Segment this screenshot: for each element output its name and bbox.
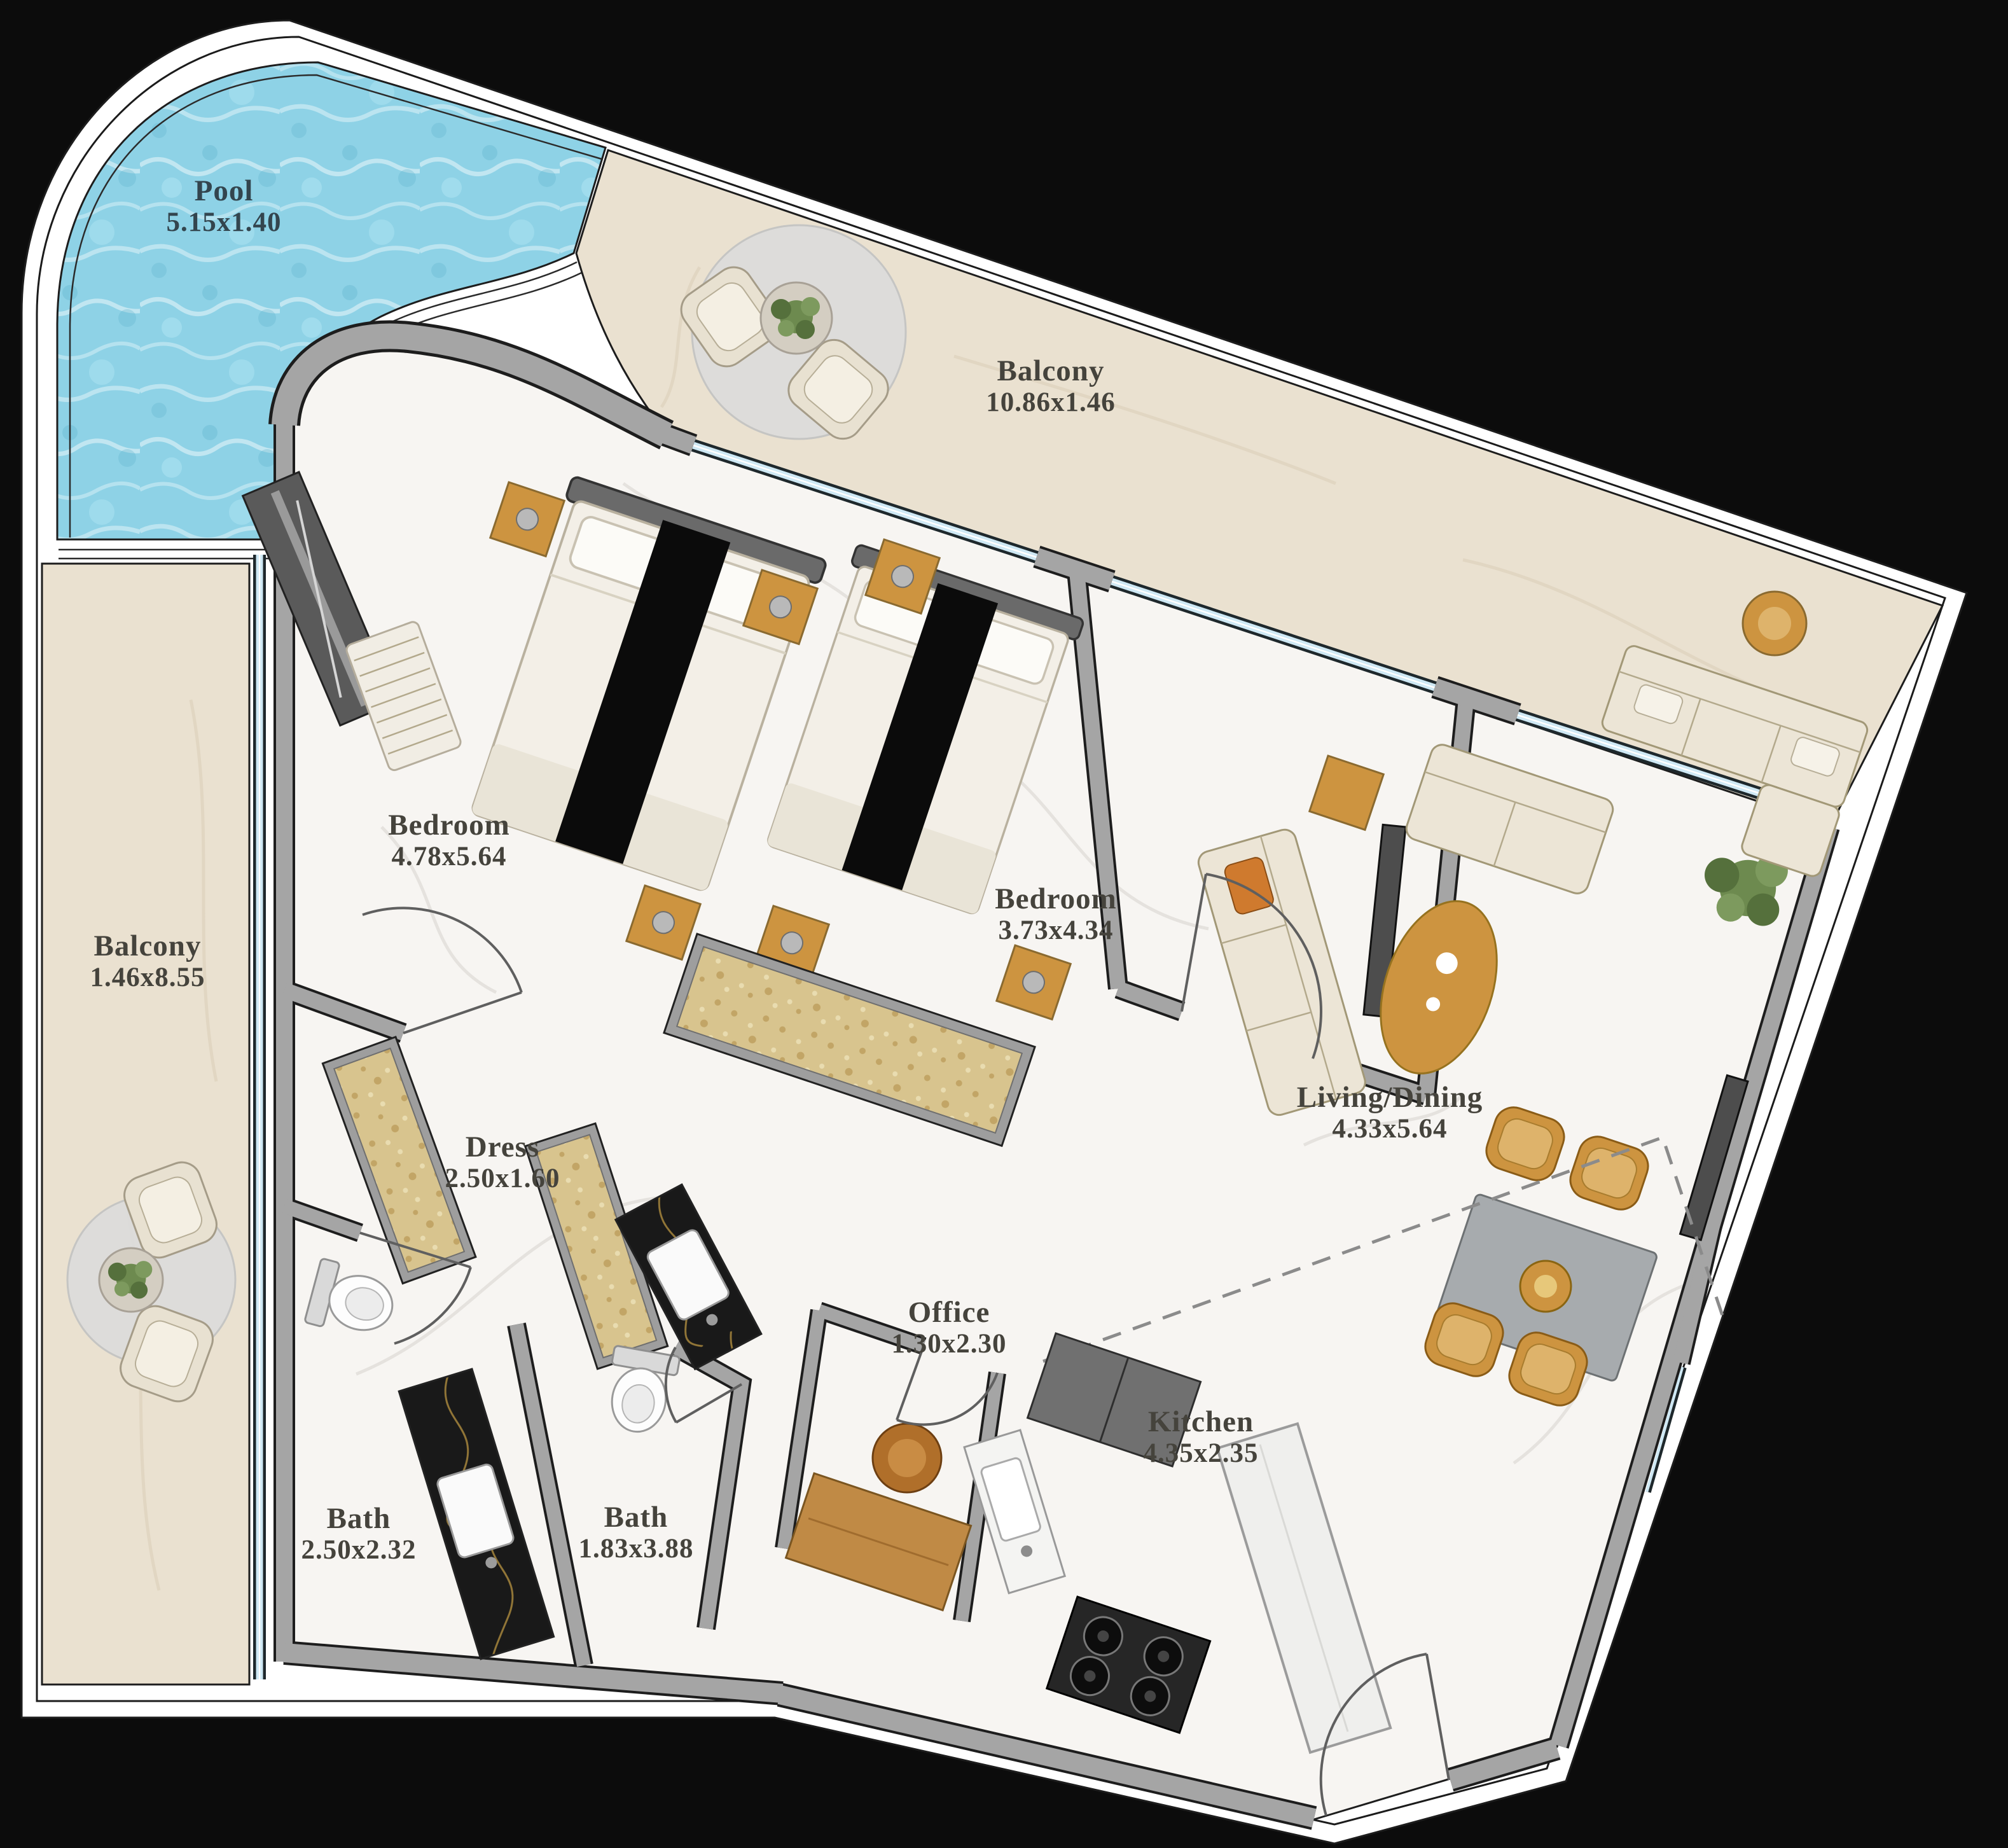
balcony-top-label: Balcony <box>997 354 1105 387</box>
balcony-left-dims: 1.46x8.55 <box>90 962 205 992</box>
living-dining-dims: 4.33x5.64 <box>1333 1114 1448 1144</box>
office-dims: 1.30x2.30 <box>892 1329 1007 1359</box>
dress-label: Dress <box>466 1130 539 1164</box>
bedroom-2-dims: 3.73x4.34 <box>999 915 1114 945</box>
pool-dims: 5.15x1.40 <box>167 207 282 237</box>
kitchen-dims: 4.35x2.35 <box>1144 1438 1259 1468</box>
dress-dims: 2.50x1.60 <box>445 1164 560 1193</box>
bedroom-1-dims: 4.78x5.64 <box>392 842 507 872</box>
balcony-left-label: Balcony <box>94 929 202 962</box>
floor-plan-svg: Pool 5.15x1.40 Balcony 10.86x1.46 Balcon… <box>0 0 2008 1848</box>
bath-2-dims: 1.83x3.88 <box>579 1534 694 1564</box>
balcony-top-dims: 10.86x1.46 <box>986 387 1116 417</box>
bath-1-dims: 2.50x2.32 <box>301 1535 417 1565</box>
office-label: Office <box>908 1296 990 1329</box>
bath-2-label: Bath <box>604 1501 668 1534</box>
pool-label: Pool <box>195 174 254 207</box>
bedroom-2-label: Bedroom <box>995 882 1117 915</box>
floor-plan-page: Pool 5.15x1.40 Balcony 10.86x1.46 Balcon… <box>0 0 2008 1848</box>
bedroom-1-label: Bedroom <box>388 809 510 842</box>
kitchen-label: Kitchen <box>1148 1405 1254 1438</box>
living-dining-label: Living/Dining <box>1297 1081 1483 1114</box>
bath-1-label: Bath <box>327 1502 391 1535</box>
